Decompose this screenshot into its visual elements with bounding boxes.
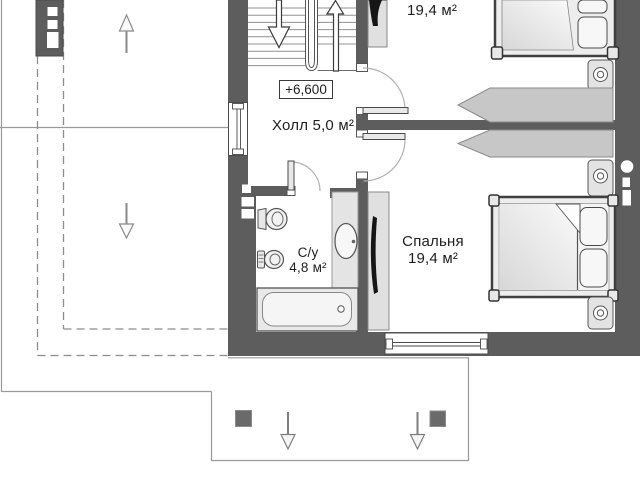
stair-treads <box>248 8 356 66</box>
wardrobe <box>458 130 613 157</box>
label-bedroom-bottom: Спальня 19,4 м² <box>399 233 467 267</box>
pillow <box>578 0 607 13</box>
lamp <box>594 306 608 320</box>
label-bedroom-top-area: 19,4 м² <box>407 2 457 19</box>
wall-stair <box>356 0 368 72</box>
elevation-mark: +6,600 <box>279 80 333 99</box>
porch <box>236 411 446 450</box>
door-bathroom <box>288 161 320 191</box>
roof-slope-arrows <box>120 15 134 238</box>
bed-foot <box>489 195 499 206</box>
nightstand <box>588 297 613 329</box>
wall-west-wide <box>248 186 256 332</box>
label-hall: Холл 5,0 м² <box>272 117 354 134</box>
floor-plan-drawing <box>0 0 640 480</box>
porch-column <box>430 411 446 427</box>
window-west <box>229 103 248 156</box>
blanket <box>500 204 577 290</box>
bed <box>492 0 619 59</box>
elevation-mark-text: +6,600 <box>285 82 327 97</box>
blanket <box>502 0 574 50</box>
bedroom-bottom-furniture <box>368 130 618 330</box>
bed <box>489 195 618 301</box>
nightstand <box>588 60 613 90</box>
bed-foot <box>608 47 619 59</box>
wall-west-upper <box>228 0 248 102</box>
roof-outline-dashed <box>38 0 231 356</box>
wall-west-lower <box>228 156 248 332</box>
drain <box>338 306 344 312</box>
label-bathroom-area: 4,8 м² <box>280 261 336 276</box>
porch-arrow-down-icon <box>411 412 425 449</box>
toilet <box>258 209 287 230</box>
faucet <box>352 240 356 244</box>
label-bedroom-area: 19,4 м² <box>399 250 467 267</box>
porch-arrow-down-icon <box>281 412 295 449</box>
pillow <box>580 249 607 287</box>
chimney <box>36 0 63 56</box>
roof-arrow-up-icon <box>120 15 134 53</box>
window-south <box>385 333 488 354</box>
pillow <box>578 17 607 48</box>
bathtub <box>257 288 358 331</box>
pillow <box>580 208 607 246</box>
wall-bathroom-north-west <box>250 186 287 196</box>
roof-arrow-down-icon <box>120 203 134 238</box>
label-bathroom-name: С/у <box>280 246 336 261</box>
stair-arrow-down-icon <box>269 0 290 48</box>
porch-column <box>236 411 252 427</box>
label-bedroom-name: Спальня <box>399 233 467 250</box>
stair-arrow-up-icon <box>327 1 344 72</box>
lamp <box>594 169 608 183</box>
wardrobe <box>458 88 613 122</box>
door-bedroom-top <box>363 68 408 114</box>
floor-plan: 19,4 м² +6,600 Холл 5,0 м² С/у 4,8 м² Сп… <box>0 0 640 480</box>
door-bedroom-bottom <box>363 134 405 182</box>
bed-foot <box>489 290 499 301</box>
bed-foot <box>608 195 618 206</box>
lamp <box>594 68 608 82</box>
label-bathroom: С/у 4,8 м² <box>280 246 336 275</box>
nightstand <box>588 160 613 196</box>
bedroom-top-furniture <box>368 0 619 122</box>
bed-foot <box>492 47 503 59</box>
staircase <box>248 0 356 71</box>
porch-outline <box>212 358 469 461</box>
